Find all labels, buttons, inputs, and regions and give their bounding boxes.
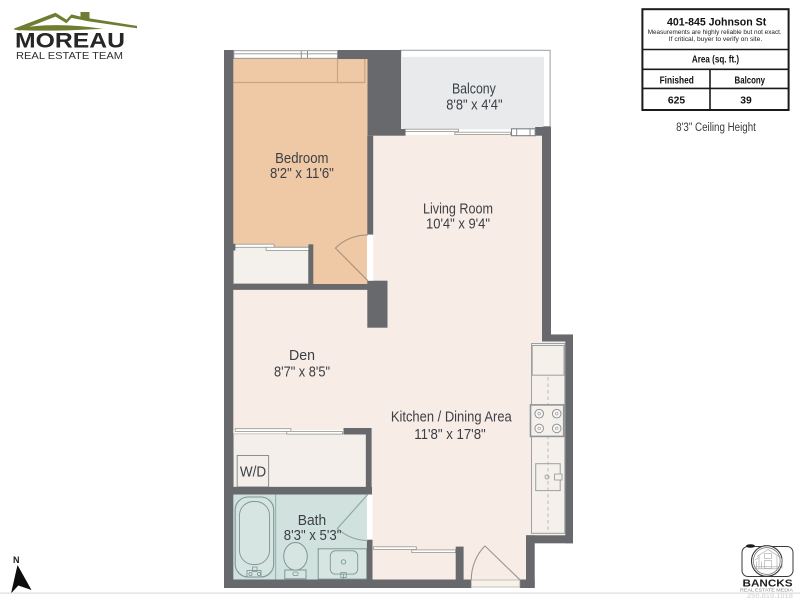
svg-text:Bedroom: Bedroom xyxy=(275,151,328,167)
svg-text:39: 39 xyxy=(740,96,752,107)
svg-text:REAL ESTATE TEAM: REAL ESTATE TEAM xyxy=(16,50,123,62)
svg-text:Den: Den xyxy=(289,348,315,364)
svg-text:Balcony: Balcony xyxy=(452,82,496,98)
svg-text:401-845 Johnson St: 401-845 Johnson St xyxy=(667,17,767,29)
svg-text:10'4" x 9'4": 10'4" x 9'4" xyxy=(426,217,490,233)
svg-text:Bath: Bath xyxy=(298,513,326,529)
svg-text:11'8" x 17'8": 11'8" x 17'8" xyxy=(414,427,486,443)
svg-text:Living Room: Living Room xyxy=(423,202,493,218)
svg-text:8'2" x 11'6": 8'2" x 11'6" xyxy=(270,166,334,182)
svg-text:Finished: Finished xyxy=(660,75,694,86)
svg-text:Measurements are highly reliab: Measurements are highly reliable but not… xyxy=(648,29,782,36)
svg-text:Balcony: Balcony xyxy=(735,75,766,86)
svg-text:8'8" x 4'4": 8'8" x 4'4" xyxy=(446,97,502,113)
svg-text:W/D: W/D xyxy=(240,464,266,481)
svg-text:8'7" x 8'5": 8'7" x 8'5" xyxy=(274,365,330,381)
svg-text:N: N xyxy=(13,555,20,565)
svg-text:8'3" Ceiling Height: 8'3" Ceiling Height xyxy=(676,122,756,134)
svg-text:625: 625 xyxy=(668,96,685,107)
svg-text:Area (sq. ft.): Area (sq. ft.) xyxy=(692,55,739,66)
svg-text:If critical, buyer to verify o: If critical, buyer to verify on site. xyxy=(669,36,763,43)
svg-text:8'3" x 5'3": 8'3" x 5'3" xyxy=(284,528,342,544)
svg-text:250.810.1018: 250.810.1018 xyxy=(747,591,793,600)
svg-text:Kitchen / Dining Area: Kitchen / Dining Area xyxy=(391,410,513,426)
